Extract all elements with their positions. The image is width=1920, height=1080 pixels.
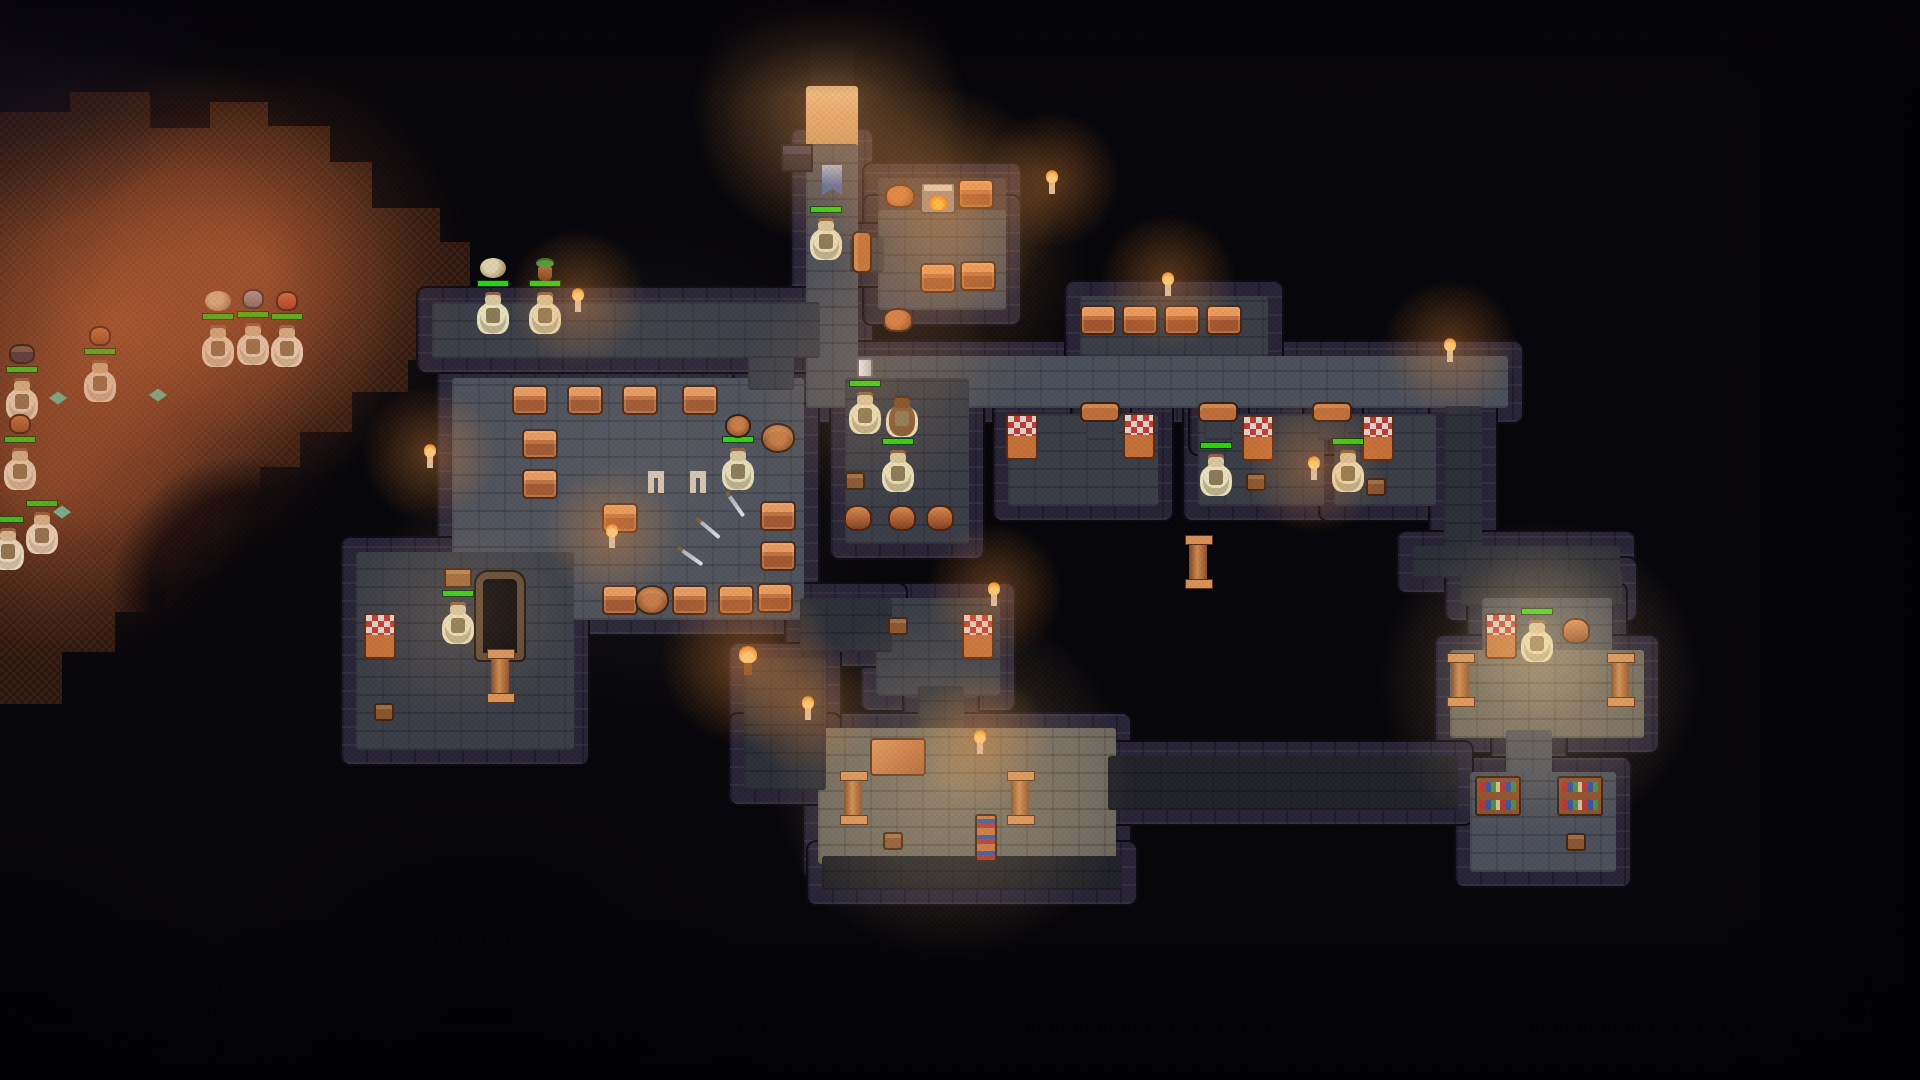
- darkness-vignette: [0, 0, 1920, 1080]
- game-viewport: [0, 0, 1920, 1080]
